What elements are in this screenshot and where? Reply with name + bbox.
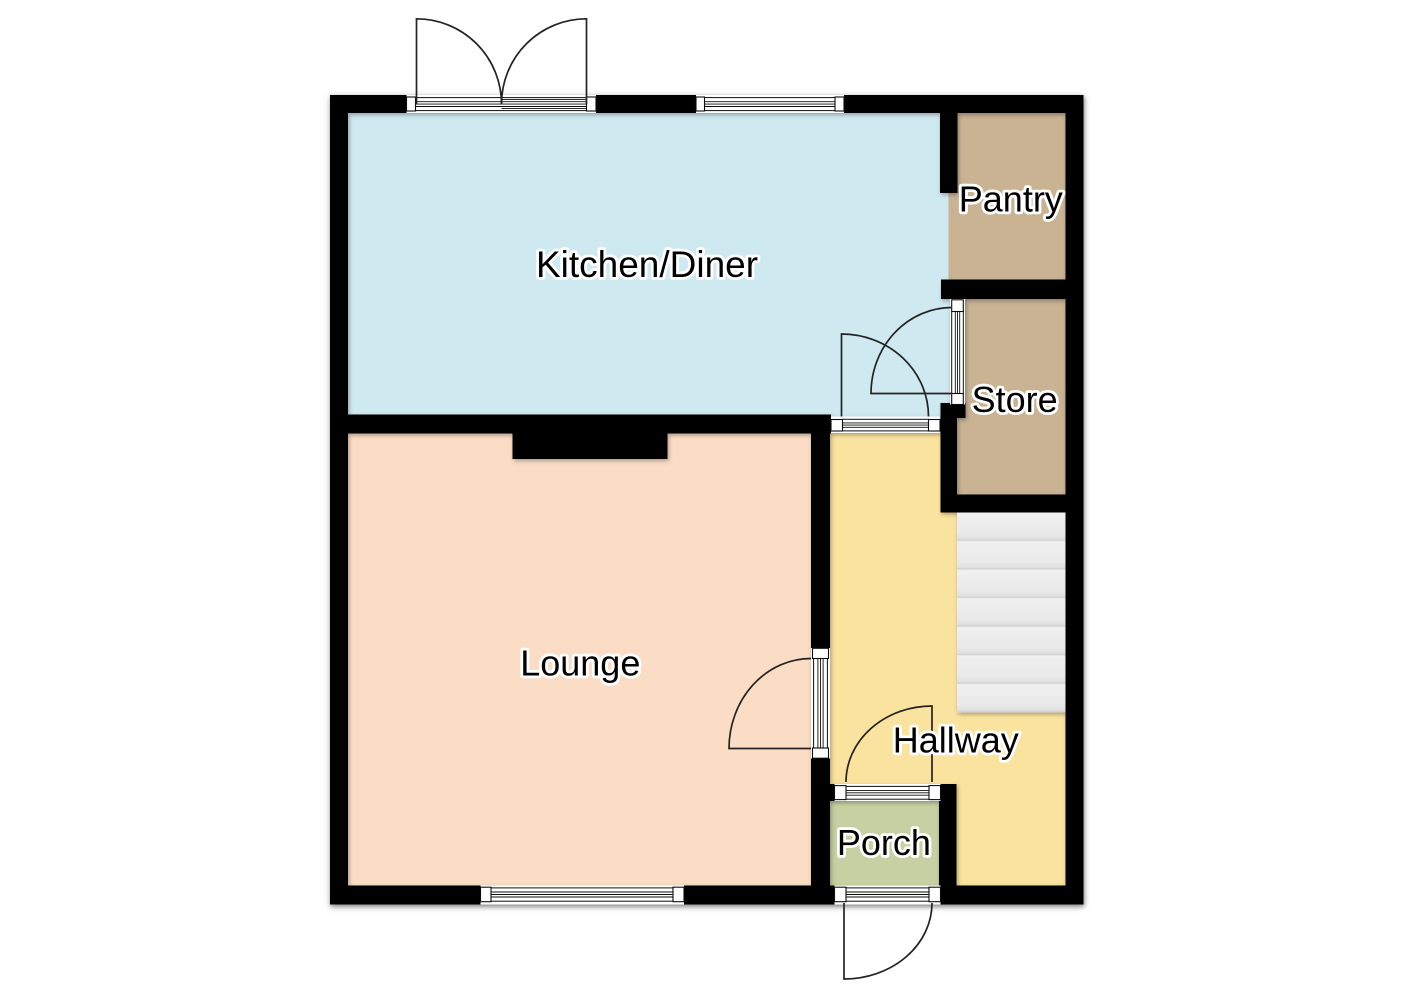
svg-text:Pantry: Pantry xyxy=(959,178,1063,219)
svg-text:Kitchen/Diner: Kitchen/Diner xyxy=(536,244,758,285)
svg-text:Hallway: Hallway xyxy=(893,720,1019,761)
svg-text:Porch: Porch xyxy=(837,822,931,863)
svg-text:Store: Store xyxy=(972,379,1058,420)
svg-text:Lounge: Lounge xyxy=(520,642,640,683)
